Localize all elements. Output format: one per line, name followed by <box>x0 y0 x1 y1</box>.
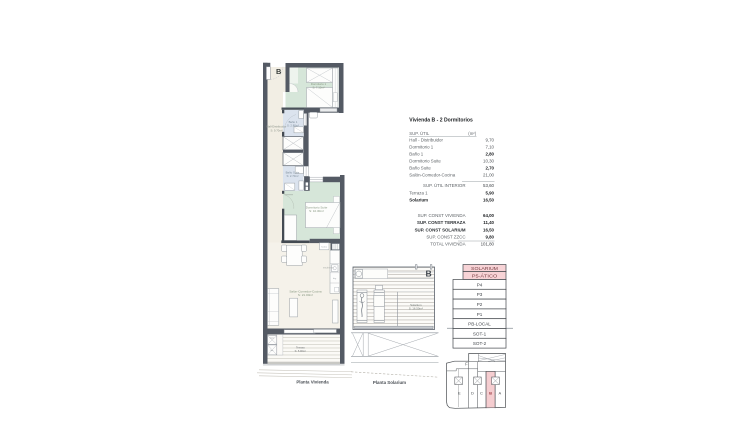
svg-text:encimera: encimera <box>323 267 334 270</box>
svg-text:SUP. CONST SOLARIUM: SUP. CONST SOLARIUM <box>415 227 466 232</box>
svg-text:Planta Solarium: Planta Solarium <box>373 380 406 385</box>
svg-text:P4: P4 <box>477 282 483 287</box>
svg-text:horno: horno <box>321 246 327 249</box>
svg-text:SUP. CONST VIVIENDA: SUP. CONST VIVIENDA <box>418 213 466 218</box>
svg-text:5,90: 5,90 <box>485 190 494 195</box>
svg-text:S: 21.00m²: S: 21.00m² <box>298 293 313 297</box>
svg-text:Dormitorio Suite: Dormitorio Suite <box>409 159 441 164</box>
svg-text:B: B <box>276 67 281 76</box>
svg-text:2,80: 2,80 <box>485 152 494 157</box>
svg-text:S: 9.70m²: S: 9.70m² <box>270 128 282 132</box>
svg-text:Salón-Comedor-Cocina: Salón-Comedor-Cocina <box>409 173 455 178</box>
svg-text:SUP. CONST ZZCC: SUP. CONST ZZCC <box>426 234 465 239</box>
svg-text:PB-LOCAL: PB-LOCAL <box>468 322 491 327</box>
svg-text:(m²): (m²) <box>468 131 476 136</box>
svg-text:Baño Suite: Baño Suite <box>409 166 431 171</box>
svg-text:SOT-1: SOT-1 <box>473 331 487 336</box>
svg-text:TOTAL VIVIENDA: TOTAL VIVIENDA <box>430 242 465 247</box>
svg-text:SUP. CONST TERRAZA: SUP. CONST TERRAZA <box>417 220 466 225</box>
svg-text:Dormitorio 1: Dormitorio 1 <box>409 145 433 150</box>
svg-text:S: 10.30m²: S: 10.30m² <box>309 209 324 213</box>
svg-text:S: 5.90m²: S: 5.90m² <box>295 349 306 353</box>
svg-text:SUP. ÚTIL INTERIOR: SUP. ÚTIL INTERIOR <box>423 183 465 188</box>
svg-text:S: 2.80m²: S: 2.80m² <box>287 123 299 127</box>
svg-text:SUP. ÚTIL: SUP. ÚTIL <box>409 131 430 136</box>
svg-text:SOLARIUM: SOLARIUM <box>471 266 498 271</box>
svg-text:P2: P2 <box>477 302 483 307</box>
svg-text:P1: P1 <box>477 312 483 317</box>
svg-text:7,10: 7,10 <box>485 145 494 150</box>
svg-text:9,70: 9,70 <box>485 138 494 143</box>
svg-text:frig.: frig. <box>333 277 337 280</box>
svg-text:Terraza 1: Terraza 1 <box>409 190 428 195</box>
svg-text:Baño 1: Baño 1 <box>409 152 423 157</box>
svg-text:D: D <box>471 391 474 396</box>
svg-text:101,80: 101,80 <box>481 242 495 247</box>
svg-text:P3: P3 <box>477 292 483 297</box>
svg-text:9,80: 9,80 <box>485 234 494 239</box>
svg-text:Planta Vivienda: Planta Vivienda <box>296 380 329 385</box>
svg-text:Solarium: Solarium <box>409 197 428 202</box>
svg-text:P5-ÁTICO: P5-ÁTICO <box>472 273 498 279</box>
svg-text:16,50: 16,50 <box>483 227 495 232</box>
svg-text:21,00: 21,00 <box>483 173 495 178</box>
svg-text:B: B <box>426 268 432 278</box>
svg-text:B: B <box>489 391 492 396</box>
svg-text:E: E <box>458 391 461 396</box>
svg-text:C: C <box>480 391 483 396</box>
svg-text:Vivienda B - 2 Dormitorios: Vivienda B - 2 Dormitorios <box>409 118 473 124</box>
svg-text:2,70: 2,70 <box>485 166 494 171</box>
svg-text:trast.: trast. <box>270 337 275 340</box>
svg-text:Terraza: Terraza <box>296 346 305 350</box>
svg-text:S: 16.50m²: S: 16.50m² <box>409 307 423 311</box>
svg-text:53,60: 53,60 <box>483 183 495 188</box>
svg-text:S: 2.70m²: S: 2.70m² <box>286 174 298 178</box>
svg-text:64,00: 64,00 <box>483 213 495 218</box>
svg-text:F: F <box>465 361 468 366</box>
svg-text:SOT-2: SOT-2 <box>473 341 487 346</box>
svg-text:10,30: 10,30 <box>483 159 495 164</box>
svg-text:lav.: lav. <box>271 350 274 352</box>
svg-text:Hall - Distribuidor: Hall - Distribuidor <box>409 138 443 143</box>
svg-text:A: A <box>498 391 501 396</box>
svg-text:S: 7.10m²: S: 7.10m² <box>312 86 324 90</box>
svg-text:16,50: 16,50 <box>483 197 495 202</box>
svg-text:11,40: 11,40 <box>483 220 494 225</box>
